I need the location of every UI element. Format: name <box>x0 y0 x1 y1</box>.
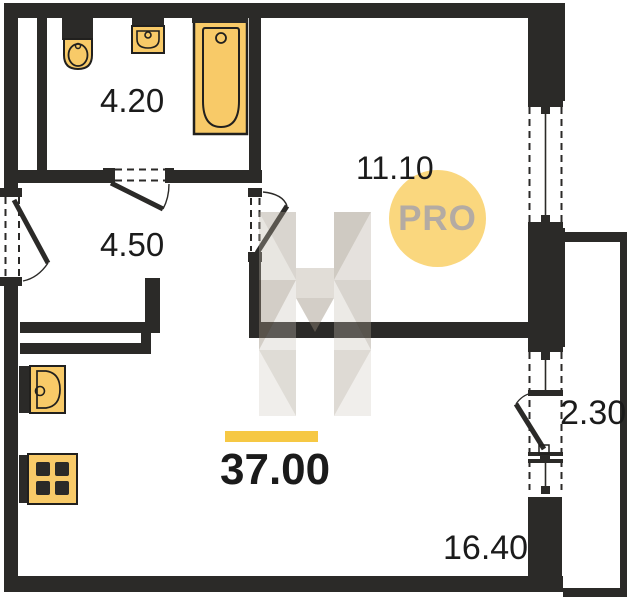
watermark-left-leg <box>259 212 296 416</box>
living-room-area-label: 11.10 <box>356 152 434 186</box>
hallway-area-label: 4.50 <box>100 228 164 263</box>
pro-badge-label: PRO <box>398 199 477 239</box>
total-area-accent-bar <box>225 431 318 442</box>
watermark-right-leg <box>334 212 371 416</box>
floor-plan: PRO 4.20 4.50 11.10 2.30 16.40 37.00 <box>0 0 629 600</box>
bathroom-area-label: 4.20 <box>100 84 164 119</box>
total-area-label: 37.00 <box>220 448 330 492</box>
watermark-crossbar <box>296 268 334 332</box>
balcony-area-label: 2.30 <box>560 396 626 432</box>
kitchen-living-area-label: 16.40 <box>443 531 528 567</box>
watermark-h-logo <box>0 0 629 600</box>
